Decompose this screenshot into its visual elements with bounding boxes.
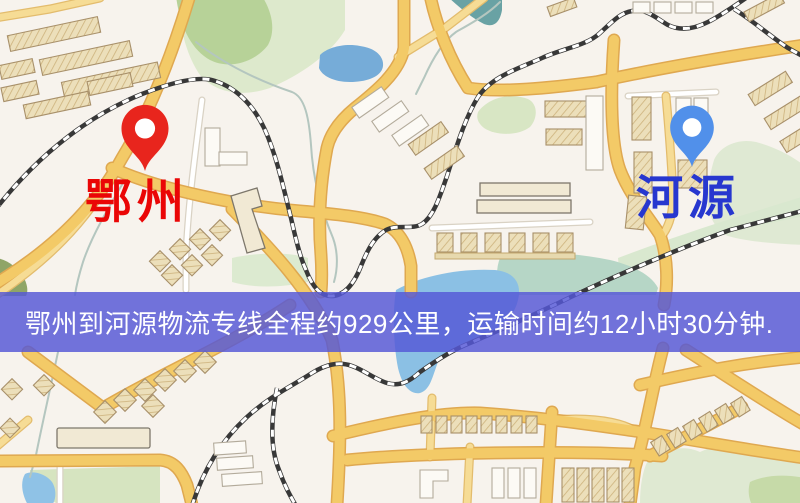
origin-pin-hole <box>135 118 155 138</box>
origin-city-label: 鄂州 <box>85 177 189 229</box>
route-banner-text: 鄂州到河源物流专线全程约929公里，运输时间约12小时30分钟. <box>25 304 773 341</box>
map-image: 鄂州 河源 <box>0 0 800 503</box>
route-banner: 鄂州到河源物流专线全程约929公里，运输时间约12小时30分钟. <box>0 292 800 352</box>
destination-pin-hole <box>683 118 702 137</box>
pond-top <box>319 45 383 82</box>
destination-city-label: 河源 <box>636 173 740 225</box>
map-canvas: 鄂州 河源 鄂州到河源物流专线全程约929公里，运输时间约12小时30分钟. <box>0 0 800 503</box>
